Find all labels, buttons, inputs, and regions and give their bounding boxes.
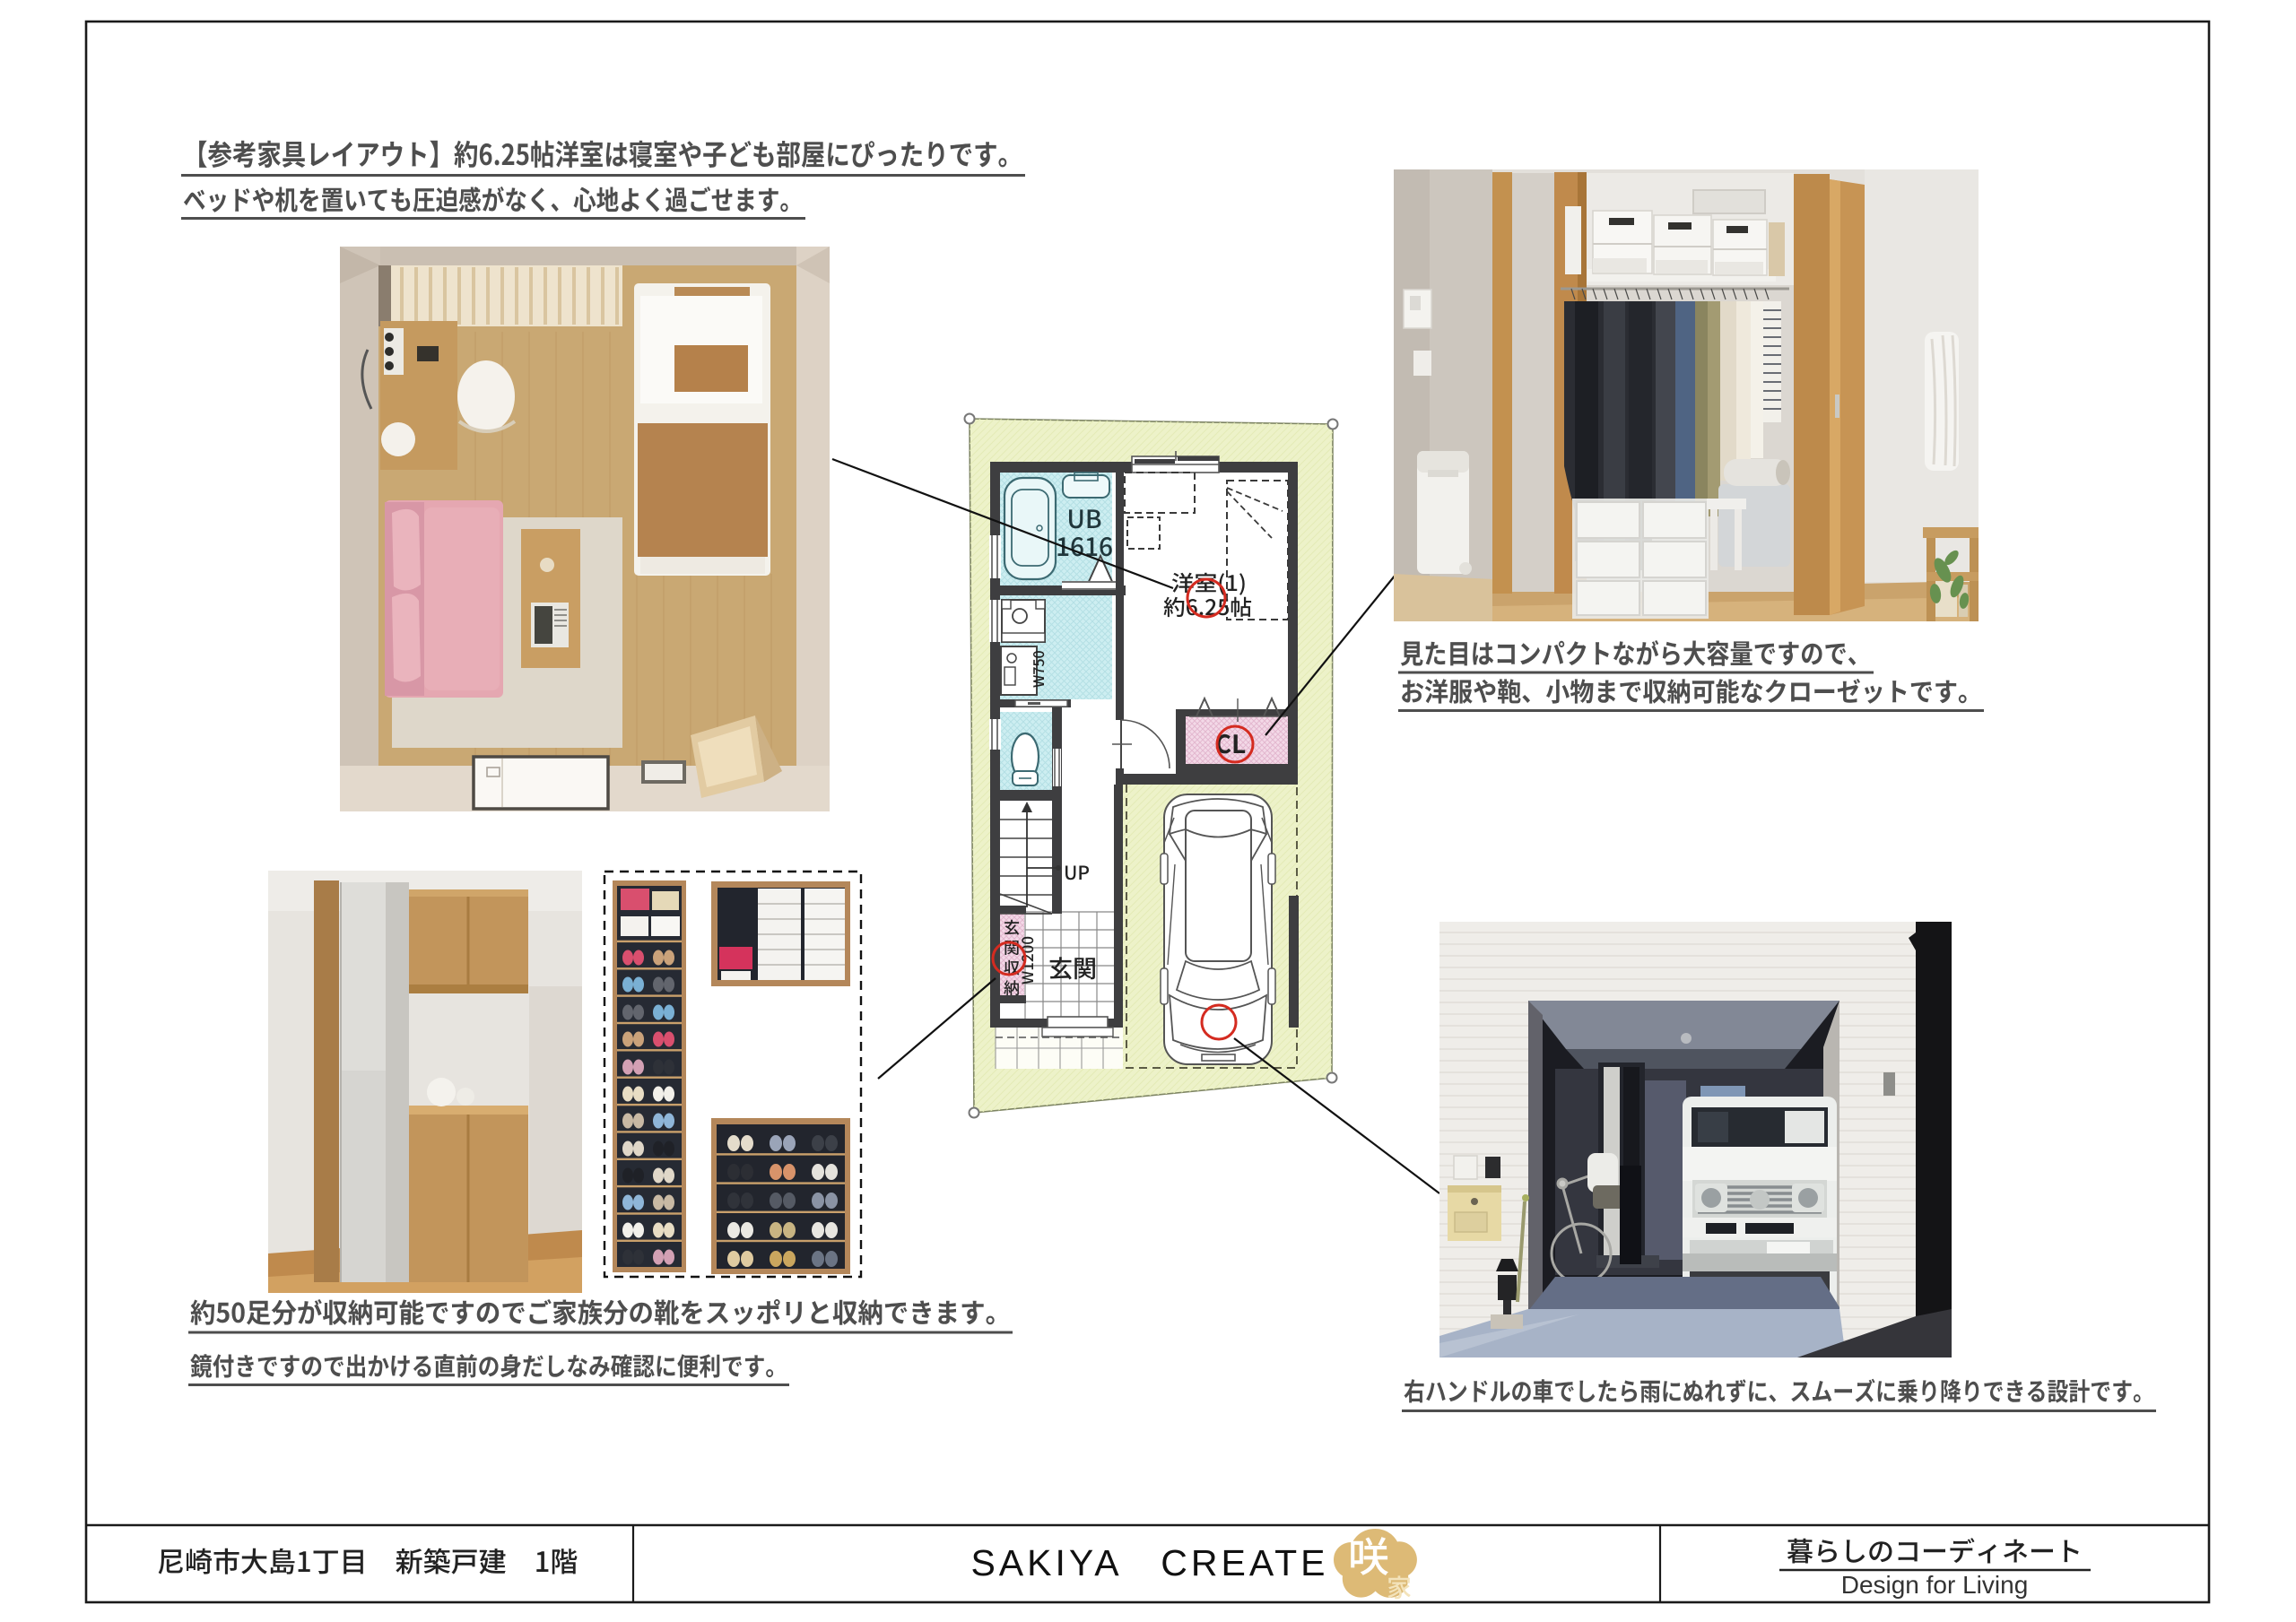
svg-text:Design for Living: Design for Living xyxy=(1841,1571,2029,1599)
svg-text:SAKIYA CREATE: SAKIYA CREATE xyxy=(970,1542,1328,1583)
